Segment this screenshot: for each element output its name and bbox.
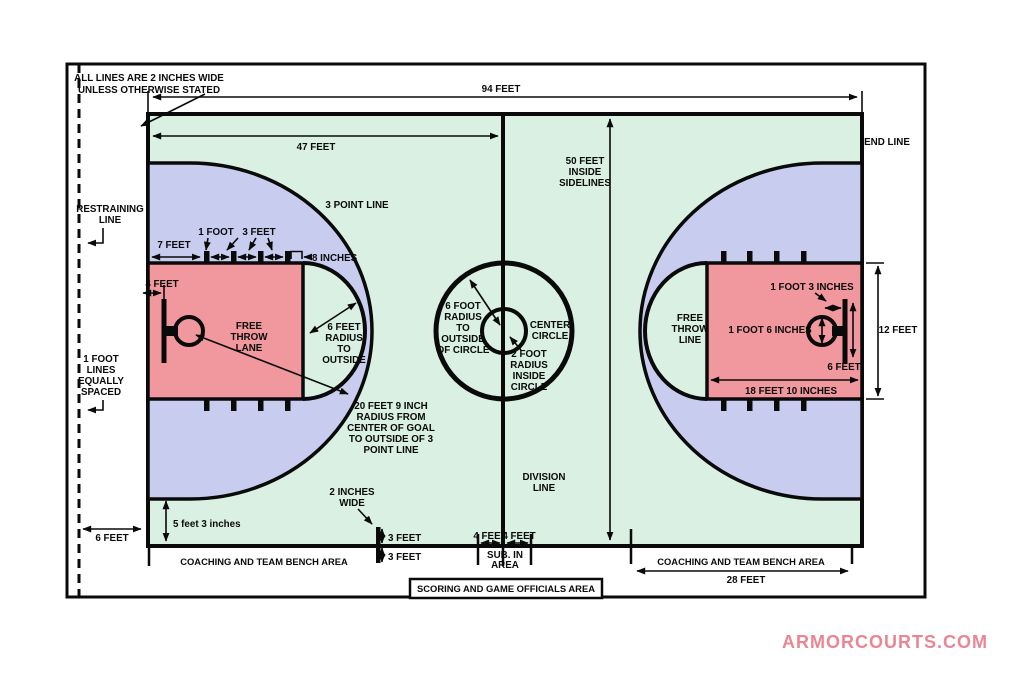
three-point-radius-label: 20 FEET 9 INCH [354,401,428,412]
one-foot-lines-label: LINES [87,365,116,376]
three-point-line-label: 3 POINT LINE [325,200,389,211]
hash-mark [204,399,210,411]
three-point-radius-label: RADIUS FROM [356,412,425,423]
note-label: UNLESS OTHERWISE STATED [78,85,220,96]
two-inches-wide-label: 2 INCHES [329,487,375,498]
coaching-area-right-label: COACHING AND TEAM BENCH AREA [657,556,825,567]
hash-mark [231,251,237,263]
court-length-label: 94 FEET [482,84,521,95]
one-foot-lines-label: EQUALLY [78,376,124,387]
six-feet-left-label: 6 FEET [95,533,128,544]
hash-mark [801,399,807,411]
center-circle-label: CIRCLE [532,331,569,342]
scoring-area-label: SCORING AND GAME OFFICIALS AREA [417,583,595,594]
three-point-radius-label: CENTER OF GOAL [347,423,435,434]
hash-mark [801,251,807,263]
division-line-label: DIVISION [522,472,565,483]
court-width-label: SIDELINES [559,178,611,189]
one-foot-lines-label: 1 FOOT [83,354,118,365]
one-foot-six-label: 1 FOOT 6 INCHES [728,325,812,336]
eight-inches-label: 8 INCHES [312,253,358,264]
brand-watermark: ARMORCOURTS.COM [782,632,988,652]
end-line-label: END LINE [864,137,910,148]
court-width-label: 50 FEET [566,156,605,167]
eighteen-feet-ten-label: 18 FEET 10 INCHES [745,386,837,397]
ft-radius-label: TO [337,344,351,355]
twenty-eight-feet-label: 28 FEET [727,575,766,586]
free-throw-line-label: THROW [671,324,709,335]
free-throw-lane-label: LANE [236,343,263,354]
center-inner-radius-label: INSIDE [513,371,546,382]
court-diagram-page: ALL LINES ARE 2 INCHES WIDE UNLESS OTHER… [0,0,1024,677]
note-label: ALL LINES ARE 2 INCHES WIDE [74,73,224,84]
center-inner-radius-label: 2 FOOT [511,349,546,360]
center-outer-radius-label: OUTSIDE [441,334,485,345]
restraining-line-label: LINE [99,215,122,226]
half-court-label: 47 FEET [297,142,336,153]
center-outer-radius-label: OF CIRCLE [437,345,490,356]
five-feet-three-label: 5 feet 3 inches [173,519,241,530]
center-circle-label: CENTER [530,320,570,331]
one-foot-label: 1 FOOT [198,227,233,238]
seven-feet-label: 7 FEET [157,240,190,251]
coaching-area-left-label: COACHING AND TEAM BENCH AREA [180,556,348,567]
four-feet-label: 4 FEET [145,279,178,290]
hash-mark [774,399,780,411]
sideline-hash-mark [376,527,381,563]
center-outer-radius-label: TO [456,323,470,334]
hash-mark [747,251,753,263]
ft-radius-label: 6 FEET [327,322,360,333]
sub-in-area-label: AREA [491,560,519,571]
ft-radius-label: RADIUS [325,333,363,344]
center-outer-radius-label: 6 FOOT [445,301,480,312]
one-foot-lines-label: SPACED [81,387,121,398]
hash-mark [721,399,727,411]
twelve-feet-label: 12 FEET [879,325,918,336]
hash-mark [747,399,753,411]
ft-radius-label: OUTSIDE [322,355,366,366]
free-throw-line-label: FREE [677,313,704,324]
hash-mark [285,251,291,263]
free-throw-lane-label: FREE [236,321,263,332]
free-throw-lane-label: THROW [230,332,268,343]
three-point-radius-label: TO OUTSIDE OF 3 [349,434,434,445]
center-outer-radius-label: RADIUS [444,312,482,323]
six-feet-backboard-label: 6 FEET [827,362,860,373]
free-throw-line-label: LINE [679,335,702,346]
one-foot-three-label: 1 FOOT 3 INCHES [770,282,854,293]
three-feet-upper-label: 3 FEET [388,533,421,544]
hash-mark [204,251,210,263]
three-feet-label: 3 FEET [242,227,275,238]
center-inner-radius-label: CIRCLE [511,382,548,393]
three-point-radius-label: POINT LINE [364,445,419,456]
hash-mark [721,251,727,263]
court-width-label: INSIDE [569,167,602,178]
hash-mark [258,399,264,411]
two-inches-wide-label: WIDE [339,498,365,509]
hash-mark [231,399,237,411]
hash-mark [285,399,291,411]
basketball-court-diagram: ALL LINES ARE 2 INCHES WIDE UNLESS OTHER… [0,0,1024,677]
hash-mark [774,251,780,263]
four-feet-sub-label: 4 FEET [502,531,535,542]
three-feet-lower-label: 3 FEET [388,552,421,563]
hash-mark [258,251,264,263]
division-line-label: LINE [533,483,556,494]
restraining-line-label: RESTRAINING [76,204,144,215]
center-inner-radius-label: RADIUS [510,360,548,371]
